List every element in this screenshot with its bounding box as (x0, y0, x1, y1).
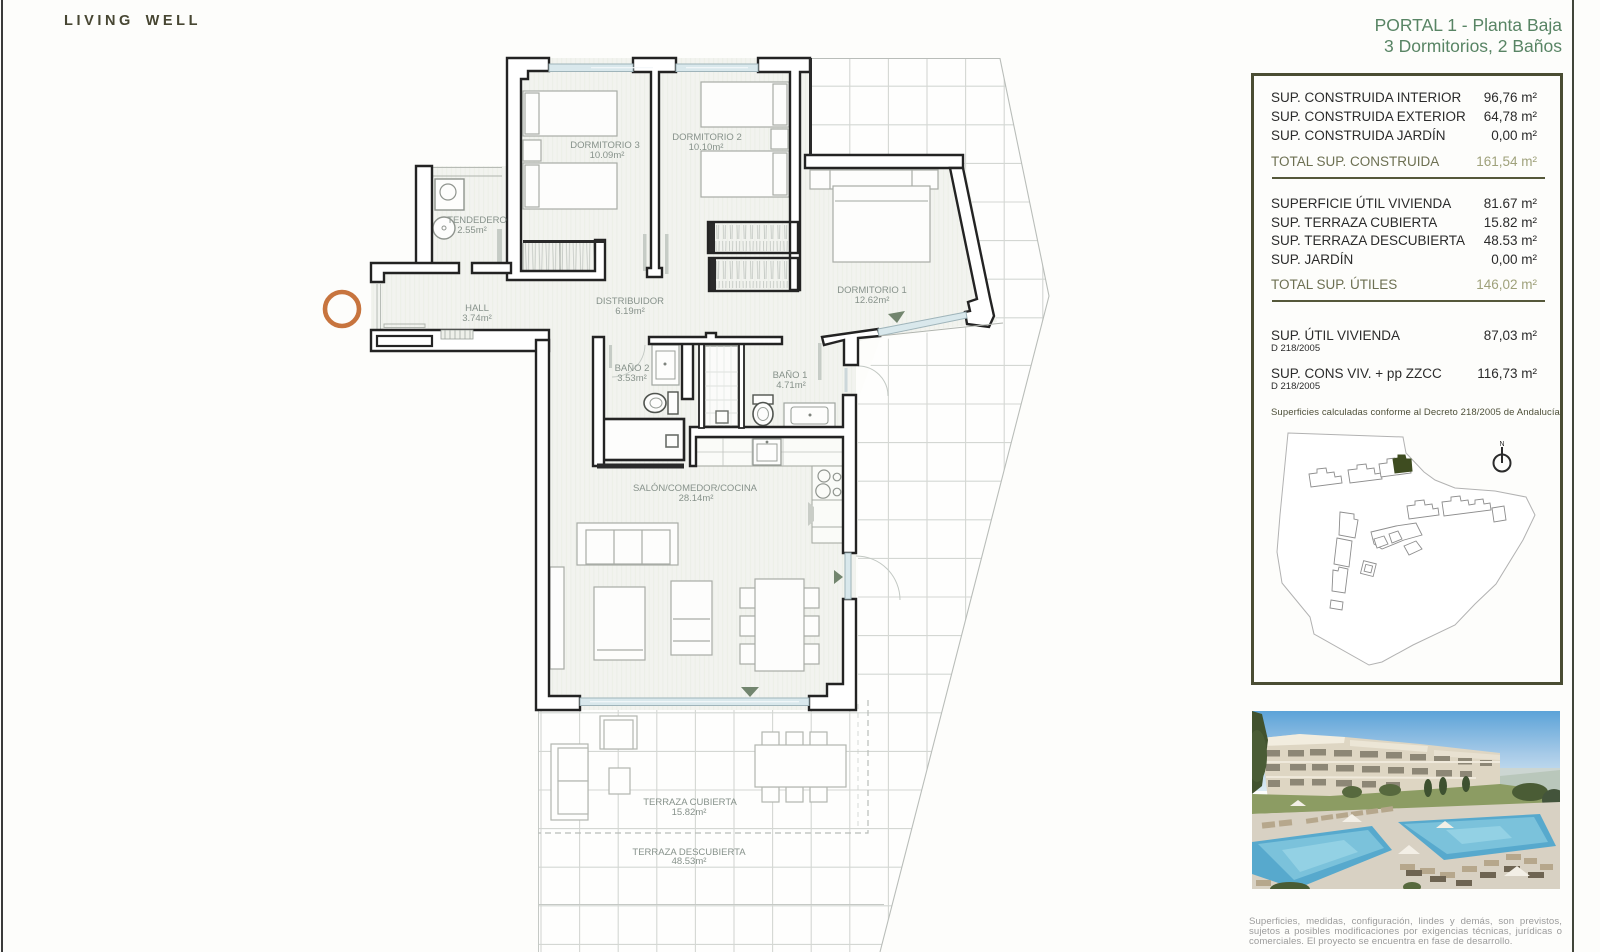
svg-text:6.19m²: 6.19m² (615, 306, 645, 317)
svg-text:4.71m²: 4.71m² (776, 380, 806, 391)
svg-text:15.82m²: 15.82m² (672, 807, 707, 818)
svg-text:2.55m²: 2.55m² (457, 225, 487, 236)
svg-text:10.09m²: 10.09m² (590, 150, 625, 161)
svg-text:3.74m²: 3.74m² (462, 313, 492, 324)
svg-text:28.14m²: 28.14m² (679, 493, 714, 504)
svg-text:12.62m²: 12.62m² (855, 295, 890, 306)
svg-text:48.53m²: 48.53m² (672, 856, 707, 867)
svg-text:10.10m²: 10.10m² (689, 142, 724, 153)
svg-text:3.53m²: 3.53m² (617, 373, 647, 384)
